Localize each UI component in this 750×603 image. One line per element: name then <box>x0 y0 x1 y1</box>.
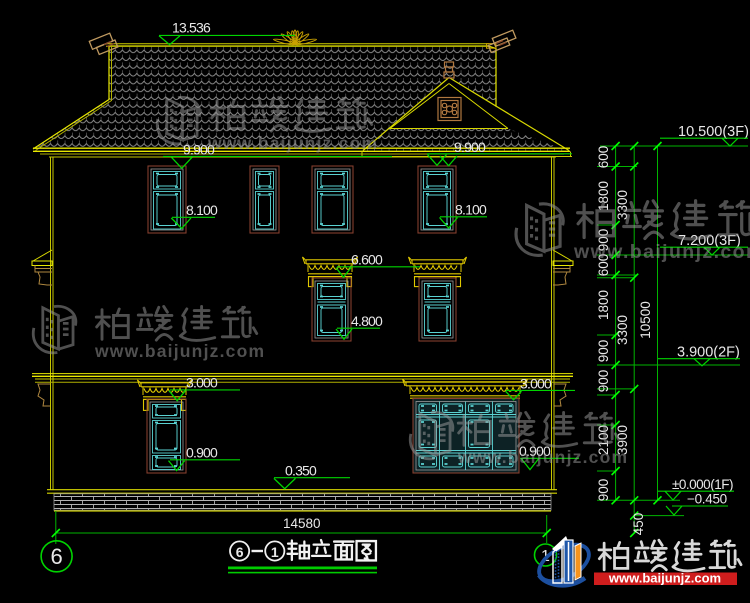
svg-text:13.536: 13.536 <box>172 20 211 36</box>
svg-text:1800: 1800 <box>596 290 611 320</box>
svg-text:www.baijunjz.com: www.baijunjz.com <box>207 133 378 153</box>
svg-text:±0.000(1F): ±0.000(1F) <box>672 477 733 492</box>
svg-text:0.350: 0.350 <box>285 463 317 479</box>
svg-text:3.000: 3.000 <box>520 376 552 392</box>
svg-text:3300: 3300 <box>615 315 630 345</box>
svg-text:www.baijunjz.com: www.baijunjz.com <box>573 241 750 263</box>
svg-text:1: 1 <box>271 544 279 560</box>
svg-text:6.600: 6.600 <box>351 252 383 268</box>
svg-text:www.baijunjz.com: www.baijunjz.com <box>457 447 628 467</box>
svg-text:8.100: 8.100 <box>455 202 487 218</box>
svg-text:6: 6 <box>236 544 244 560</box>
svg-text:0.900: 0.900 <box>186 445 218 461</box>
svg-text:600: 600 <box>596 146 611 169</box>
svg-text:www.baijunjz.com: www.baijunjz.com <box>608 571 721 586</box>
svg-text:4.800: 4.800 <box>351 313 383 329</box>
svg-text:www.baijunjz.com: www.baijunjz.com <box>94 341 265 361</box>
svg-text:−0.450: −0.450 <box>687 492 727 507</box>
svg-text:900: 900 <box>596 370 611 393</box>
svg-text:9.900: 9.900 <box>454 139 486 155</box>
svg-text:3.000: 3.000 <box>186 375 218 391</box>
svg-text:900: 900 <box>596 340 611 363</box>
svg-text:6: 6 <box>50 544 62 569</box>
svg-text:450: 450 <box>631 513 646 536</box>
svg-text:900: 900 <box>596 479 611 502</box>
svg-text:14580: 14580 <box>283 516 321 531</box>
svg-text:10.500(3F): 10.500(3F) <box>678 124 749 140</box>
svg-text:8.100: 8.100 <box>186 202 218 218</box>
svg-text:3.900(2F): 3.900(2F) <box>677 345 740 361</box>
svg-text:10500: 10500 <box>638 301 653 339</box>
